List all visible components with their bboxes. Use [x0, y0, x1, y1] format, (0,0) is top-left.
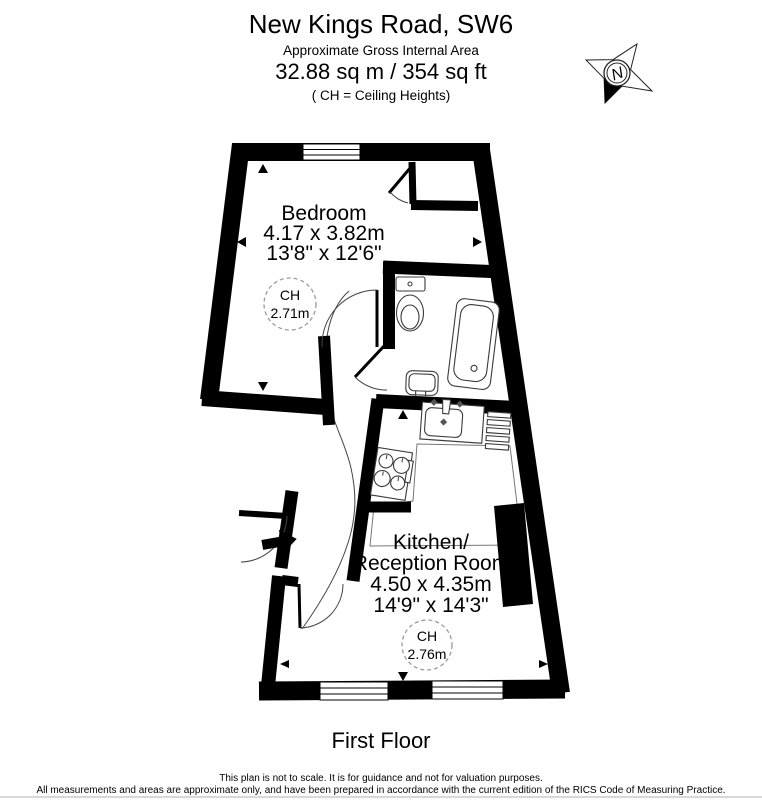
disclaimer-line2: All measurements and areas are approxima… — [36, 785, 725, 796]
bedroom-ch-badge: CH 2.71m — [264, 278, 316, 330]
basin-icon — [406, 370, 439, 396]
toilet-icon — [396, 277, 425, 331]
kitchen-arrow-down — [398, 672, 408, 681]
bedroom-arrow-down — [258, 382, 268, 391]
page-title: New Kings Road, SW6 — [249, 9, 513, 39]
kitchen-ch-label: CH — [417, 628, 437, 644]
kitchen-name-line1: Kitchen/ — [393, 531, 469, 554]
kitchen-name-line2: Reception Room — [353, 552, 509, 575]
floor-label: First Floor — [332, 728, 431, 753]
bathtub-icon — [447, 298, 500, 391]
window-kitchen-left — [320, 682, 388, 700]
header: New Kings Road, SW6 Approximate Gross In… — [249, 9, 513, 103]
closet-door — [389, 167, 411, 203]
floorplan-canvas: New Kings Road, SW6 Approximate Gross In… — [0, 0, 762, 811]
ceiling-height-note: ( CH = Ceiling Heights) — [312, 88, 450, 103]
window-bedroom — [303, 144, 360, 160]
bedroom-ch-label: CH — [280, 287, 300, 303]
bedroom-door — [322, 290, 377, 347]
bathroom-door — [355, 345, 387, 390]
footer: This plan is not to scale. It is for gui… — [0, 773, 762, 797]
kitchen-ch-badge: CH 2.76m — [402, 620, 452, 670]
compass-icon: N — [586, 44, 652, 103]
kitchen-arrow-right — [539, 660, 548, 668]
kitchen-arrow-left — [280, 660, 289, 668]
bedroom-ch-value: 2.71m — [271, 305, 310, 321]
kitchen-dimensions-imperial: 14'9" x 14'3" — [373, 594, 488, 617]
bedroom-arrow-up — [258, 164, 268, 173]
gross-internal-area: 32.88 sq m / 354 sq ft — [275, 59, 487, 84]
kitchen-ch-value: 2.76m — [408, 646, 447, 662]
bedroom-arrow-left — [237, 237, 246, 247]
bathroom-fixtures — [396, 277, 500, 397]
bedroom-dimensions-imperial: 13'8" x 12'6" — [266, 242, 381, 265]
floorplan-page: New Kings Road, SW6 Approximate Gross In… — [0, 0, 762, 811]
bedroom-label: Bedroom 4.17 x 3.82m 13'8" x 12'6" — [263, 202, 384, 265]
kitchen-arrow-up — [398, 410, 408, 419]
window-kitchen-right — [432, 681, 503, 699]
disclaimer-line1: This plan is not to scale. It is for gui… — [219, 773, 543, 784]
header-subtitle: Approximate Gross Internal Area — [283, 43, 479, 58]
hob-icon — [370, 447, 414, 500]
drainer-icon — [485, 412, 511, 451]
stair-door — [299, 584, 343, 628]
kitchen-dimensions-metric: 4.50 x 4.35m — [370, 573, 491, 596]
bedroom-arrow-right — [473, 237, 482, 247]
